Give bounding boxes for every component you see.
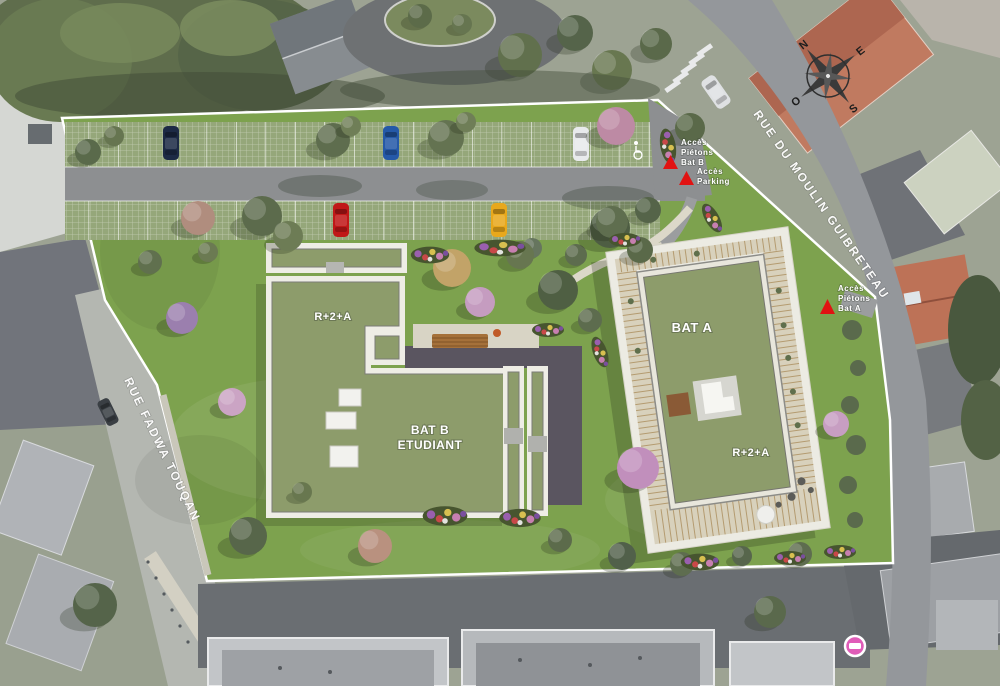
svg-text:Accès: Accès [681,138,707,147]
bat-a-floors-label: R+2+A [732,447,769,459]
bat-a-label: BAT A [672,320,713,335]
svg-text:Bat A: Bat A [838,304,861,313]
flower-bed [609,233,641,247]
bat-b-annex-roof [375,336,399,359]
site-plan-canvas: R+2+A BAT B ETUDIANT BAT A R+2+A RUE DU … [0,0,1000,686]
site-plan-aerial-view: R+2+A BAT B ETUDIANT BAT A R+2+A RUE DU … [0,0,1000,686]
bat-b-floors-label: R+2+A [314,311,351,323]
flower-bed [824,545,856,559]
flower-bed [423,506,468,526]
flower-bed [499,509,541,527]
planter-pot [493,329,501,337]
car [573,127,589,161]
svg-text:Piétons: Piétons [838,294,870,303]
car [383,126,399,160]
svg-text:Piétons: Piétons [681,148,713,157]
flower-bed [411,247,449,264]
svg-text:Bat B: Bat B [681,158,704,167]
car [163,126,179,160]
terrace-table [666,392,691,417]
flower-bed [474,240,525,257]
flower-bed [681,554,719,571]
bat-b-label-line2: ETUDIANT [398,438,463,452]
car [333,203,349,237]
car [491,203,507,237]
svg-text:Accès: Accès [697,167,723,176]
svg-text:Parking: Parking [697,177,730,186]
poi-marker-icon [845,636,865,656]
svg-text:Accès: Accès [838,284,864,293]
flower-bed [532,323,564,337]
bench [432,334,488,348]
flower-bed [774,551,806,565]
bat-b-label-line1: BAT B [411,423,449,437]
